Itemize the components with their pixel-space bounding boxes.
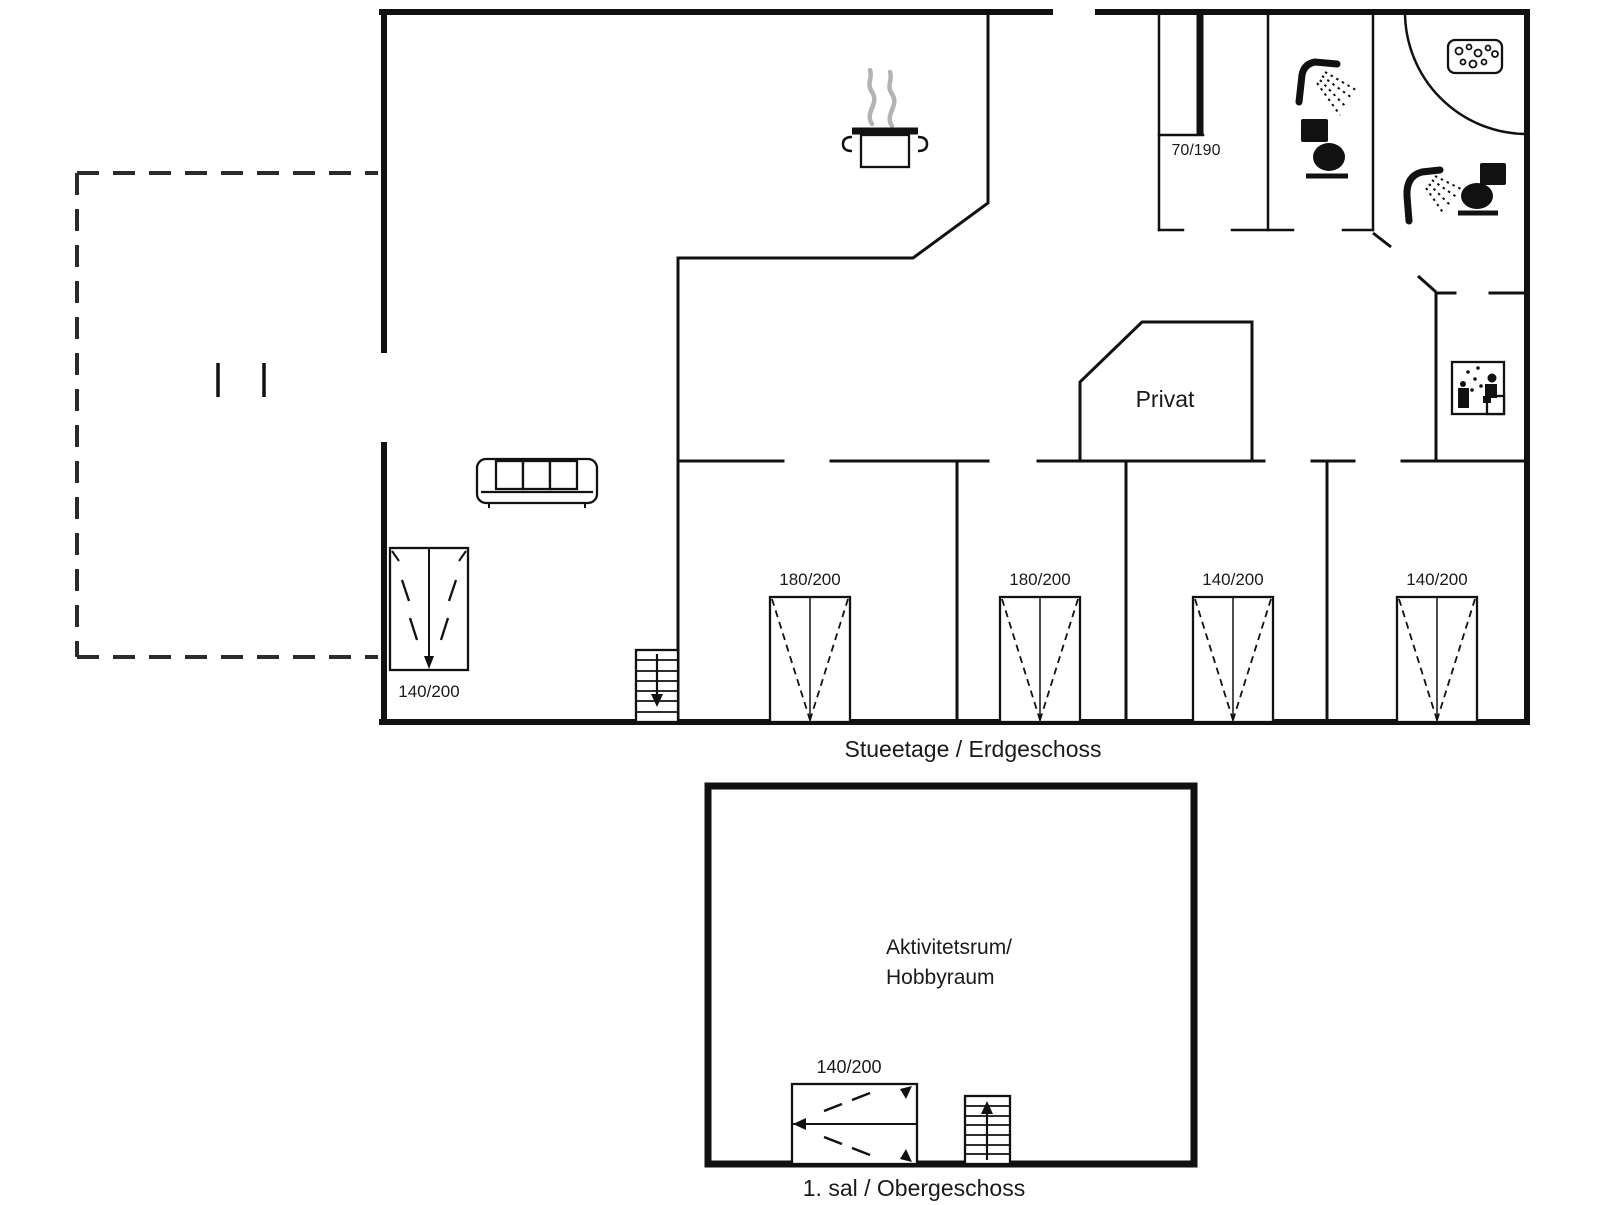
first-floor-plan: Aktivitetsrum/ Hobbyraum 140/200 1. sal … [708,786,1194,1201]
washbasin-icon [1448,40,1502,73]
outer-walls [382,12,1527,722]
bed-dimension-label: 180/200 [1009,570,1070,589]
terrace-outline [77,173,378,657]
bed-dimension-label: 140/200 [816,1057,881,1077]
door-swing-mark [1418,276,1436,292]
bed-icon-3 [1193,597,1273,722]
bed-dimension-label: 140/200 [1202,570,1263,589]
bed-dimension-label: 140/200 [1406,570,1467,589]
ground-floor-plan: 140/200 180/200 180/200 140/200 [77,12,1527,762]
bed-icon-1 [770,597,850,722]
washing-machine-icon [1452,362,1504,414]
first-floor-caption: 1. sal / Obergeschoss [803,1175,1025,1201]
stairs-down-icon [636,650,678,722]
cooking-pot-icon [843,70,927,167]
bed-icon-4 [1397,597,1477,722]
bed-icon-horizontal [792,1084,917,1164]
ground-floor-caption: Stueetage / Erdgeschoss [845,736,1102,762]
room-name-line1: Aktivitetsrum/ [886,936,1012,959]
toilet-icon [1301,119,1348,176]
wardrobe-dimension-label: 140/200 [398,682,459,701]
shower-icon [1407,170,1463,221]
shower-icon [1299,62,1356,115]
bed-icon-2 [1000,597,1080,722]
private-room-label: Privat [1136,386,1195,412]
stairs-up-icon [965,1096,1010,1164]
sofa-icon [477,459,597,508]
shower-dimension-label: 70/190 [1172,142,1221,159]
bed-dimension-label: 180/200 [779,570,840,589]
floor-plan-document: 140/200 180/200 180/200 140/200 [0,0,1606,1205]
floor-plan-drawing: 140/200 180/200 180/200 140/200 [0,0,1606,1205]
toilet-icon [1458,163,1506,213]
room-name-line2: Hobbyraum [886,966,995,989]
wardrobe-icon [390,548,468,670]
door-swing-mark [1373,233,1391,247]
